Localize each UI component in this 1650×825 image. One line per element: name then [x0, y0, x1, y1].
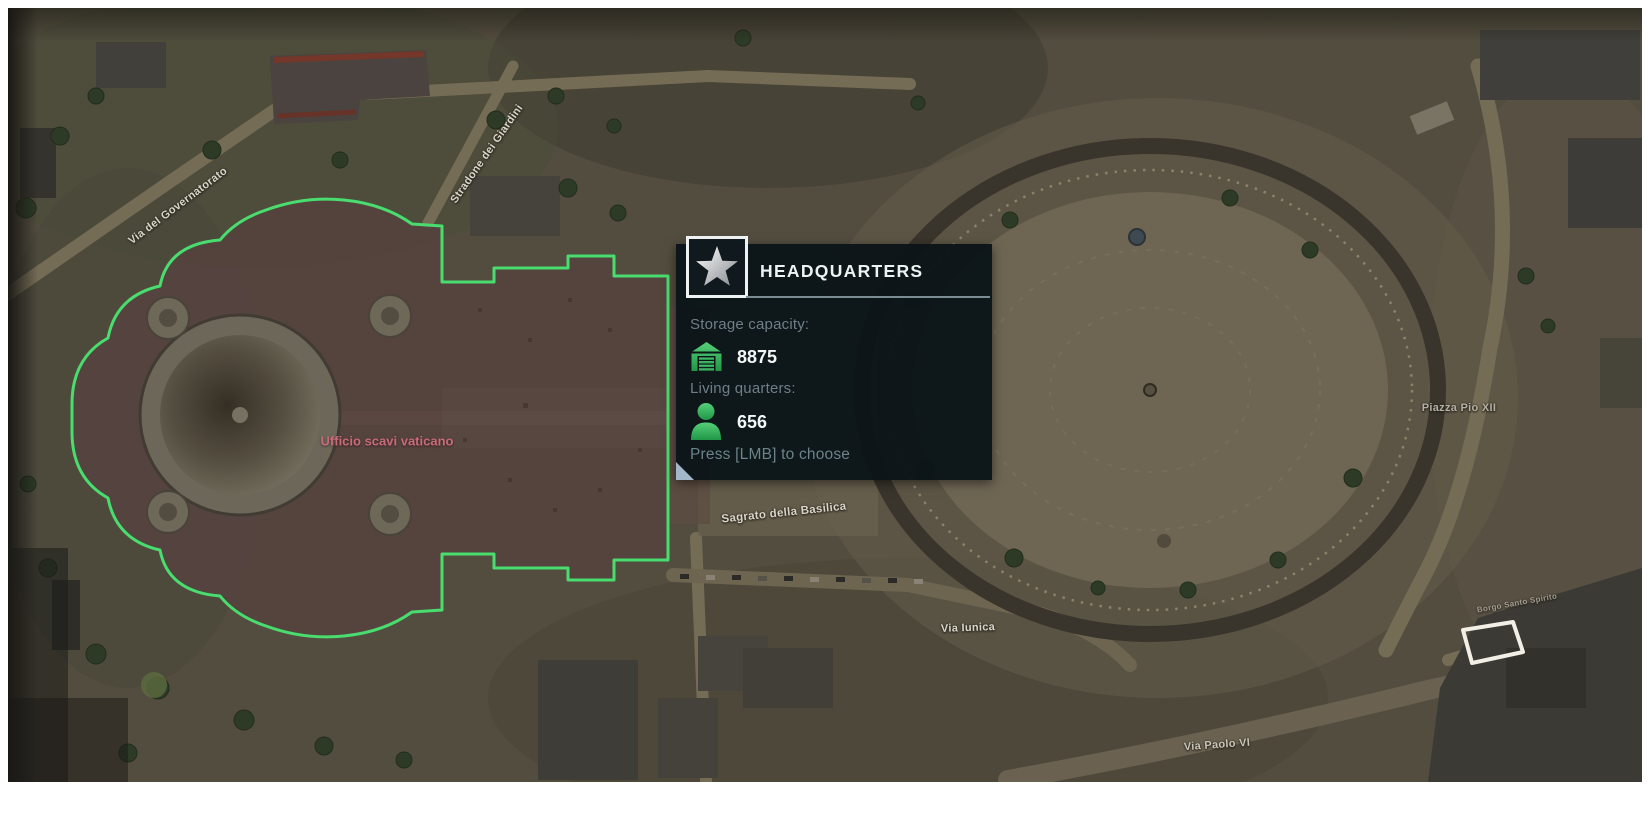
garage-icon: [690, 340, 723, 377]
tooltip-title: HEADQUARTERS: [760, 261, 923, 282]
choose-action-hint: Press [LMB] to choose: [690, 446, 850, 464]
poi-label-ufficio-scavi-vaticano: Ufficio scavi vaticano: [321, 434, 454, 449]
star-icon: [694, 245, 740, 289]
headquarters-tooltip: HEADQUARTERS Storage capacity:: [676, 244, 992, 480]
tooltip-corner-fold: [676, 462, 694, 480]
living-quarters-label: Living quarters:: [690, 380, 796, 397]
living-quarters-value: 656: [737, 412, 767, 433]
storage-capacity-value: 8875: [737, 347, 777, 368]
headquarters-icon-box: [686, 236, 748, 298]
obelisk: [1144, 384, 1156, 396]
fountain: [1129, 229, 1145, 245]
tooltip-divider: [746, 296, 990, 298]
game-screen: Via del Governatorato Stradone dei Giard…: [0, 0, 1650, 825]
person-icon: [689, 402, 723, 445]
storage-capacity-label: Storage capacity:: [690, 316, 809, 333]
